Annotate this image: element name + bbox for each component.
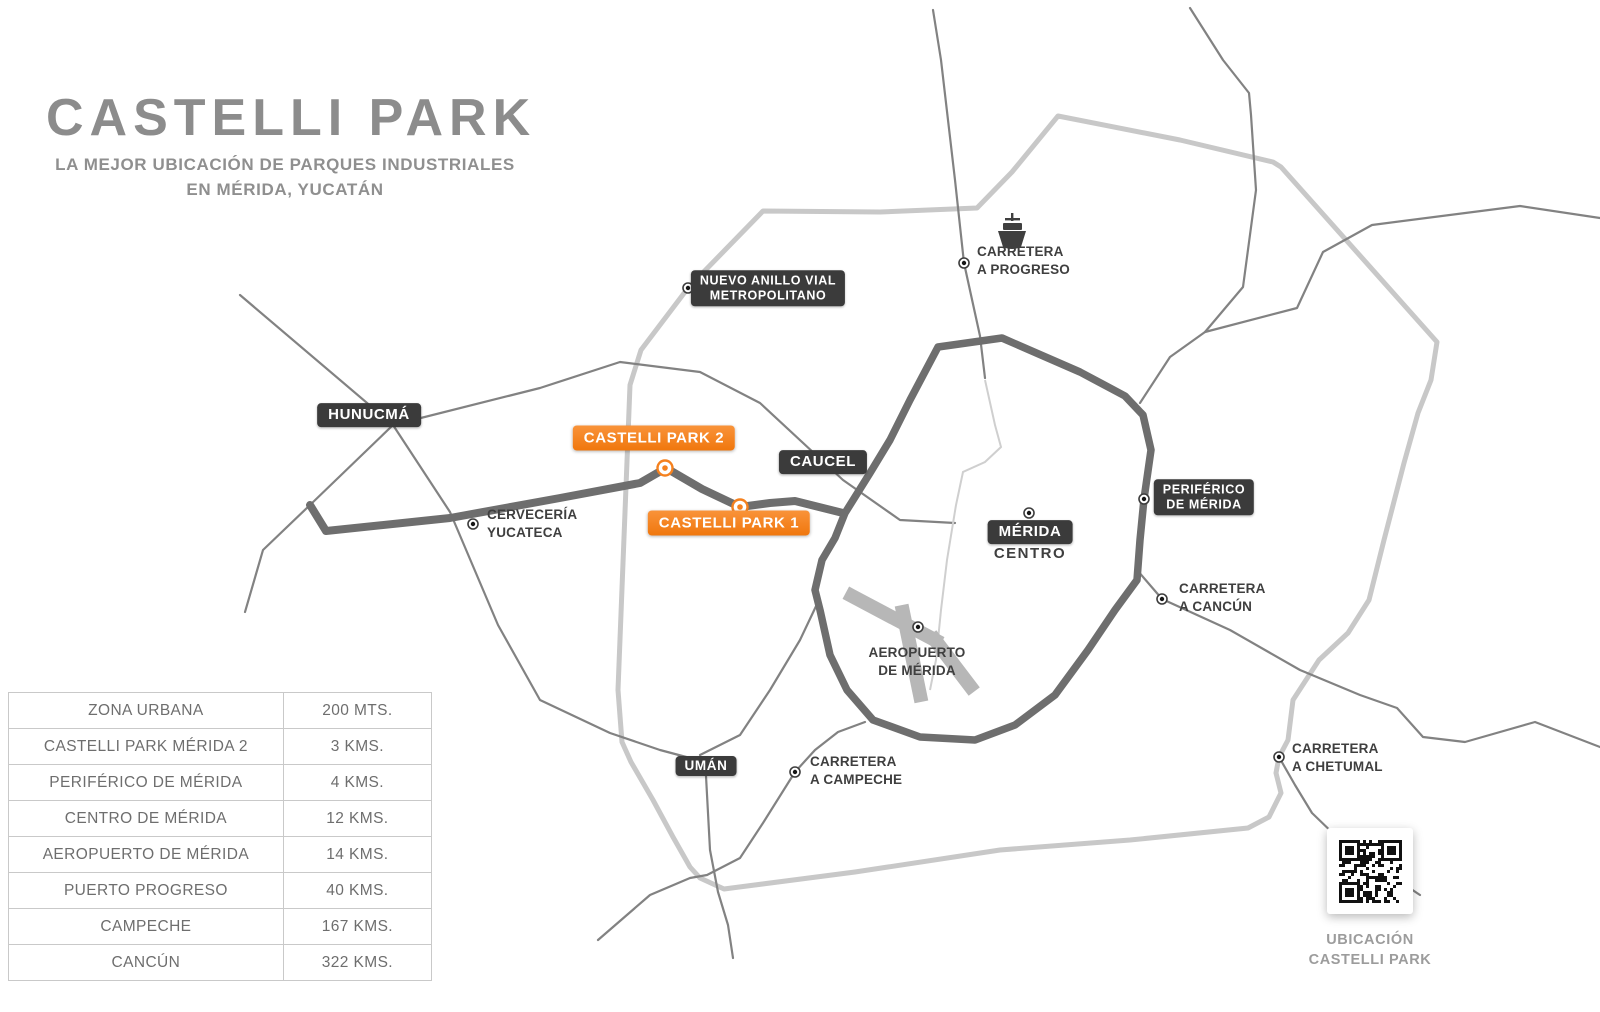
row-label: PERIFÉRICO DE MÉRIDA xyxy=(9,765,284,801)
page-subtitle: LA MEJOR UBICACIÓN DE PARQUES INDUSTRIAL… xyxy=(44,153,526,202)
distance-table: ZONA URBANA200 MTS. CASTELLI PARK MÉRIDA… xyxy=(8,692,432,981)
table-row: PERIFÉRICO DE MÉRIDA4 KMS. xyxy=(9,765,432,801)
label-aeropuerto: AEROPUERTO DE MÉRIDA xyxy=(868,644,965,680)
badge-caucel: CAUCEL xyxy=(779,450,867,474)
label-cerveceria-yucateca: CERVECERÍA YUCATECA xyxy=(487,506,577,542)
row-value: 200 MTS. xyxy=(283,693,431,729)
anillo-line-2: METROPOLITANO xyxy=(700,288,836,303)
progreso-line-2: A PROGRESO xyxy=(977,261,1070,279)
table-row: CENTRO DE MÉRIDA12 KMS. xyxy=(9,801,432,837)
cerveceria-marker xyxy=(468,519,478,529)
row-value: 4 KMS. xyxy=(283,765,431,801)
castelli-park-map-page: CASTELLI PARK LA MEJOR UBICACIÓN DE PARQ… xyxy=(0,0,1600,1012)
row-label: ZONA URBANA xyxy=(9,693,284,729)
campeche-marker xyxy=(790,767,800,777)
table-row: CASTELLI PARK MÉRIDA 23 KMS. xyxy=(9,729,432,765)
campeche-line-2: A CAMPECHE xyxy=(810,771,902,789)
table-row: AEROPUERTO DE MÉRIDA14 KMS. xyxy=(9,837,432,873)
row-value: 3 KMS. xyxy=(283,729,431,765)
row-value: 14 KMS. xyxy=(283,837,431,873)
row-value: 40 KMS. xyxy=(283,873,431,909)
progreso-marker xyxy=(959,258,969,268)
cerveceria-line-2: YUCATECA xyxy=(487,524,577,542)
row-label: PUERTO PROGRESO xyxy=(9,873,284,909)
table-row: CAMPECHE167 KMS. xyxy=(9,909,432,945)
badge-merida: MÉRIDA xyxy=(988,520,1073,544)
table-row: CANCÚN322 KMS. xyxy=(9,945,432,981)
merida-centro-label: CENTRO xyxy=(994,545,1066,562)
badge-uman: UMÁN xyxy=(676,756,737,776)
row-label: CASTELLI PARK MÉRIDA 2 xyxy=(9,729,284,765)
secondary-roads xyxy=(240,8,1600,958)
row-value: 12 KMS. xyxy=(283,801,431,837)
badge-nuevo-anillo-vial: NUEVO ANILLO VIAL METROPOLITANO xyxy=(691,270,845,306)
badge-castelli-park-2: CASTELLI PARK 2 xyxy=(573,426,735,451)
badge-hunucma: HUNUCMÁ xyxy=(317,403,421,427)
campeche-line-1: CARRETERA xyxy=(810,753,902,771)
qr-caption: UBICACIÓN CASTELLI PARK xyxy=(1309,930,1432,971)
qr-caption-line-2: CASTELLI PARK xyxy=(1309,950,1432,970)
chetumal-line-1: CARRETERA xyxy=(1292,740,1383,758)
row-label: CENTRO DE MÉRIDA xyxy=(9,801,284,837)
qr-code xyxy=(1327,828,1413,914)
castelli-park-2-marker xyxy=(658,461,673,476)
chetumal-marker xyxy=(1274,752,1284,762)
cerveceria-line-1: CERVECERÍA xyxy=(487,506,577,524)
row-label: AEROPUERTO DE MÉRIDA xyxy=(9,837,284,873)
page-title: CASTELLI PARK xyxy=(46,88,536,148)
periferico-ring-road xyxy=(815,338,1151,740)
badge-periferico: PERIFÉRICO DE MÉRIDA xyxy=(1154,479,1254,515)
row-label: CAMPECHE xyxy=(9,909,284,945)
row-value: 167 KMS. xyxy=(283,909,431,945)
subtitle-line-1: LA MEJOR UBICACIÓN DE PARQUES INDUSTRIAL… xyxy=(44,153,526,178)
badge-castelli-park-1: CASTELLI PARK 1 xyxy=(648,511,810,536)
merida-marker xyxy=(1024,508,1034,518)
aeropuerto-line-2: DE MÉRIDA xyxy=(868,662,965,680)
periferico-line-2: DE MÉRIDA xyxy=(1163,497,1245,512)
map-markers xyxy=(468,258,1284,777)
periferico-line-1: PERIFÉRICO xyxy=(1163,482,1245,497)
qr-pattern xyxy=(1339,840,1402,903)
cancun-line-2: A CANCÚN xyxy=(1179,598,1266,616)
aeropuerto-line-1: AEROPUERTO xyxy=(868,644,965,662)
chetumal-line-2: A CHETUMAL xyxy=(1292,758,1383,776)
label-carretera-cancun: CARRETERA A CANCÚN xyxy=(1179,580,1266,616)
cancun-line-1: CARRETERA xyxy=(1179,580,1266,598)
cancun-marker xyxy=(1157,594,1167,604)
label-carretera-campeche: CARRETERA A CAMPECHE xyxy=(810,753,902,789)
subtitle-line-2: EN MÉRIDA, YUCATÁN xyxy=(44,178,526,203)
periferico-marker xyxy=(1139,494,1149,504)
anillo-line-1: NUEVO ANILLO VIAL xyxy=(700,273,836,288)
label-carretera-progreso: CARRETERA A PROGRESO xyxy=(977,243,1070,279)
label-carretera-chetumal: CARRETERA A CHETUMAL xyxy=(1292,740,1383,776)
aeropuerto-marker xyxy=(913,622,923,632)
table-row: PUERTO PROGRESO40 KMS. xyxy=(9,873,432,909)
qr-caption-line-1: UBICACIÓN xyxy=(1309,930,1432,950)
row-value: 322 KMS. xyxy=(283,945,431,981)
row-label: CANCÚN xyxy=(9,945,284,981)
progreso-line-1: CARRETERA xyxy=(977,243,1070,261)
table-row: ZONA URBANA200 MTS. xyxy=(9,693,432,729)
